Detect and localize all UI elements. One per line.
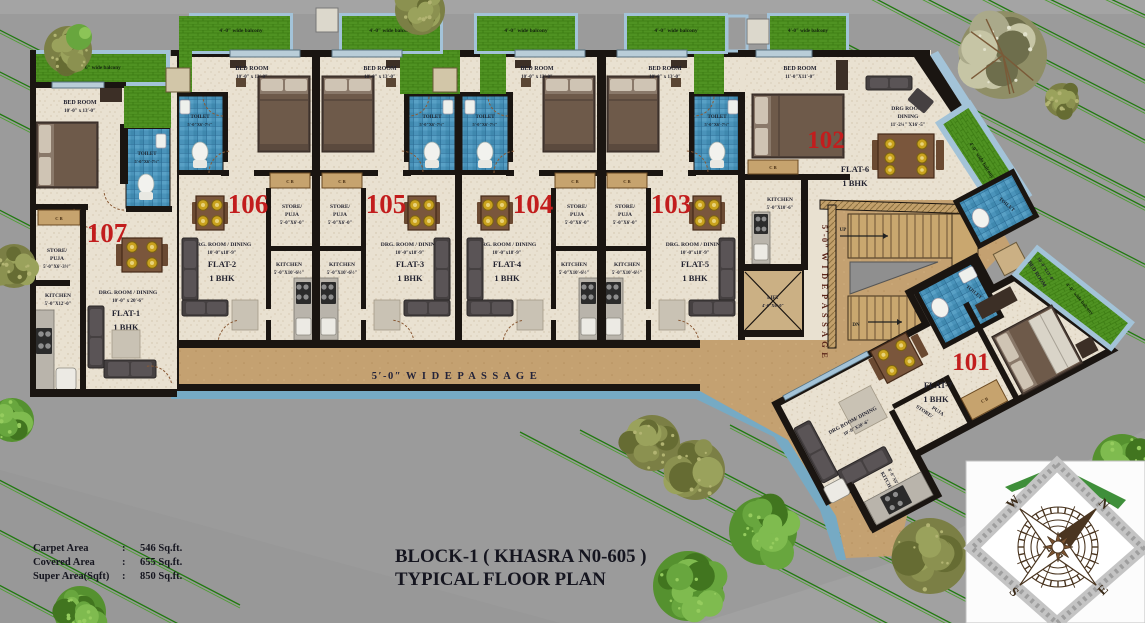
- svg-text:10′-0″ x 13′-0″: 10′-0″ x 13′-0″: [521, 75, 553, 80]
- svg-text:4′-0″X6′-0″: 4′-0″X6′-0″: [762, 303, 784, 308]
- svg-text:PUJA: PUJA: [285, 212, 299, 218]
- svg-text:BLOCK-1 ( KHASRA N0-605 ): BLOCK-1 ( KHASRA N0-605 ): [395, 546, 646, 567]
- svg-text:5′-0″X12′-0″: 5′-0″X12′-0″: [45, 302, 72, 307]
- svg-text:FLAT-4: FLAT-4: [493, 259, 522, 269]
- svg-text:C B: C B: [571, 179, 578, 184]
- svg-text:KITCHEN: KITCHEN: [276, 262, 302, 268]
- svg-text:10′-0″ x 13′-0″: 10′-0″ x 13′-0″: [649, 75, 681, 80]
- svg-text:PUJA: PUJA: [570, 212, 584, 218]
- svg-text:TOILET: TOILET: [707, 115, 727, 120]
- svg-text:5′-0″X6′-3½″: 5′-0″X6′-3½″: [43, 265, 71, 270]
- svg-text:FLAT-6: FLAT-6: [841, 164, 869, 174]
- svg-text:103: 103: [651, 189, 692, 219]
- svg-text:BED ROOM: BED ROOM: [235, 66, 269, 72]
- svg-text:Carpet Area: Carpet Area: [33, 543, 89, 554]
- svg-text:1 BHK: 1 BHK: [209, 273, 235, 283]
- svg-text:1 BHK: 1 BHK: [842, 178, 868, 188]
- svg-text::: :: [122, 557, 126, 568]
- svg-text:10′-0″x18′-9″: 10′-0″x18′-9″: [680, 251, 709, 256]
- svg-text:10′-0″ x 13′-0″: 10′-0″ x 13′-0″: [64, 109, 96, 114]
- svg-text:DN: DN: [852, 323, 860, 328]
- svg-text:KITCHEN: KITCHEN: [45, 293, 71, 299]
- svg-text:C B: C B: [769, 165, 776, 170]
- svg-text:5′-0″ W I D E P A S S A G E: 5′-0″ W I D E P A S S A G E: [820, 225, 830, 359]
- svg-text:105: 105: [366, 189, 407, 219]
- svg-text:5′-0″X10′-6½″: 5′-0″X10′-6½″: [559, 271, 590, 276]
- svg-text:PUJA: PUJA: [50, 256, 64, 262]
- svg-text:106: 106: [228, 189, 269, 219]
- svg-text:5′-0″X6′-7½″: 5′-0″X6′-7½″: [705, 122, 730, 127]
- svg-text:104: 104: [513, 189, 554, 219]
- svg-text:10′-0″ x 20′-6″: 10′-0″ x 20′-6″: [112, 299, 144, 304]
- svg-text::: :: [122, 543, 126, 554]
- svg-text:KITCHEN: KITCHEN: [614, 262, 640, 268]
- svg-text:1 BHK: 1 BHK: [494, 273, 520, 283]
- svg-text:4′-0″ wide balcony: 4′-0″ wide balcony: [654, 28, 697, 34]
- svg-text:BED ROOM: BED ROOM: [363, 66, 397, 72]
- svg-text:FLAT-5: FLAT-5: [681, 259, 709, 269]
- svg-text:5′-0″X6′-0″: 5′-0″X6′-0″: [280, 221, 305, 226]
- svg-text:4′-0″ wide balcony: 4′-0″ wide balcony: [219, 28, 262, 34]
- svg-text:STORE/: STORE/: [330, 204, 351, 210]
- svg-text:KITCHEN: KITCHEN: [329, 262, 355, 268]
- svg-text:BED ROOM: BED ROOM: [783, 66, 817, 72]
- svg-text:5′-0″X10′-6½″: 5′-0″X10′-6½″: [327, 271, 358, 276]
- svg-text:BED ROOM: BED ROOM: [520, 66, 554, 72]
- svg-text:KITCHEN: KITCHEN: [561, 262, 587, 268]
- svg-text:PUJA: PUJA: [333, 212, 347, 218]
- svg-text:11′-2¼″ X16′-5″: 11′-2¼″ X16′-5″: [891, 123, 926, 128]
- svg-text:UP: UP: [840, 228, 847, 233]
- svg-text:TOILET: TOILET: [190, 115, 210, 120]
- svg-text:655 Sq.ft.: 655 Sq.ft.: [140, 557, 183, 568]
- svg-text:10′-0″x18′-9″: 10′-0″x18′-9″: [395, 251, 424, 256]
- svg-text:C B: C B: [286, 179, 293, 184]
- svg-text:4′-0″ wide balcony: 4′-0″ wide balcony: [504, 28, 547, 34]
- svg-text:BED ROOM: BED ROOM: [648, 66, 682, 72]
- svg-text:5′-0″X6′-7½″: 5′-0″X6′-7½″: [188, 122, 213, 127]
- svg-text:DRG. ROOM / DINING: DRG. ROOM / DINING: [99, 290, 158, 296]
- svg-text:5′-0″ W I D E P A S S A G E: 5′-0″ W I D E P A S S A G E: [372, 371, 538, 382]
- svg-text:FLAT-2: FLAT-2: [208, 259, 236, 269]
- svg-text:546 Sq.ft.: 546 Sq.ft.: [140, 543, 183, 554]
- svg-text:10′-0″x18′-9″: 10′-0″x18′-9″: [207, 251, 236, 256]
- svg-text:10′-0″ x 13′-0″: 10′-0″ x 13′-0″: [364, 75, 396, 80]
- svg-text:TOILET: TOILET: [137, 152, 157, 157]
- svg-text:BED ROOM: BED ROOM: [63, 100, 97, 106]
- svg-text:DRG. ROOM / DINING: DRG. ROOM / DINING: [193, 242, 252, 248]
- svg-text:850 Sq.ft.: 850 Sq.ft.: [140, 571, 183, 582]
- svg-text:5′-0″X6′-0″: 5′-0″X6′-0″: [565, 221, 590, 226]
- svg-text:10′-0″x18′-9″: 10′-0″x18′-9″: [492, 251, 521, 256]
- svg-text:STORE/: STORE/: [47, 248, 68, 254]
- svg-text:5′-0″X6′-7½″: 5′-0″X6′-7½″: [473, 122, 498, 127]
- svg-text:1 BHK: 1 BHK: [923, 394, 949, 404]
- svg-text:5′-0″X6′-7½″: 5′-0″X6′-7½″: [135, 159, 160, 164]
- svg-text:5′-0″X10′-6½″: 5′-0″X10′-6½″: [274, 271, 305, 276]
- svg-text:5′-0″X6′-0″: 5′-0″X6′-0″: [613, 221, 638, 226]
- svg-text:TOILET: TOILET: [475, 115, 495, 120]
- svg-text:DINING: DINING: [898, 114, 919, 120]
- svg-text:102: 102: [807, 127, 845, 154]
- svg-text:DRG. ROOM / DINING: DRG. ROOM / DINING: [381, 242, 440, 248]
- svg-text:1 BHK: 1 BHK: [397, 273, 423, 283]
- svg-text:C B: C B: [623, 179, 630, 184]
- svg-text:TOILET: TOILET: [422, 115, 442, 120]
- svg-text:5′-0″X10′-6½″: 5′-0″X10′-6½″: [612, 271, 643, 276]
- svg-text:STORE/: STORE/: [567, 204, 588, 210]
- svg-text:5′-0″X6′-7½″: 5′-0″X6′-7½″: [420, 122, 445, 127]
- svg-text:10′-0″ x 13′-0″: 10′-0″ x 13′-0″: [236, 75, 268, 80]
- svg-text:TYPICAL FLOOR PLAN: TYPICAL FLOOR PLAN: [395, 569, 606, 590]
- svg-text:C B: C B: [55, 216, 62, 221]
- svg-text:1 BHK: 1 BHK: [682, 273, 708, 283]
- svg-text:Covered Area: Covered Area: [33, 557, 95, 568]
- svg-text:STORE/: STORE/: [615, 204, 636, 210]
- svg-text:11′-0″X11′-0″: 11′-0″X11′-0″: [785, 75, 815, 80]
- svg-text:DRG. ROOM / DINING: DRG. ROOM / DINING: [478, 242, 537, 248]
- svg-text:4′-0″ wide balcony: 4′-0″ wide balcony: [788, 29, 829, 34]
- svg-text:DRG. ROOM / DINING: DRG. ROOM / DINING: [666, 242, 725, 248]
- svg-text:FLAT-7: FLAT-7: [924, 380, 953, 390]
- svg-text:FLAT-3: FLAT-3: [396, 259, 424, 269]
- svg-text:STORE/: STORE/: [282, 204, 303, 210]
- svg-text:PUJA: PUJA: [618, 212, 632, 218]
- svg-text:LIFT: LIFT: [767, 296, 779, 301]
- svg-text:Super Area(Sqft): Super Area(Sqft): [33, 571, 110, 582]
- svg-text:KITCHEN: KITCHEN: [767, 197, 793, 203]
- svg-text::: :: [122, 571, 126, 582]
- svg-text:107: 107: [87, 218, 128, 248]
- svg-text:5′-0″X10′-6″: 5′-0″X10′-6″: [767, 206, 794, 211]
- svg-text:FLAT-1: FLAT-1: [112, 308, 140, 318]
- svg-text:C B: C B: [338, 179, 345, 184]
- svg-text:101: 101: [952, 349, 990, 376]
- svg-text:5′-0″X6′-0″: 5′-0″X6′-0″: [328, 221, 353, 226]
